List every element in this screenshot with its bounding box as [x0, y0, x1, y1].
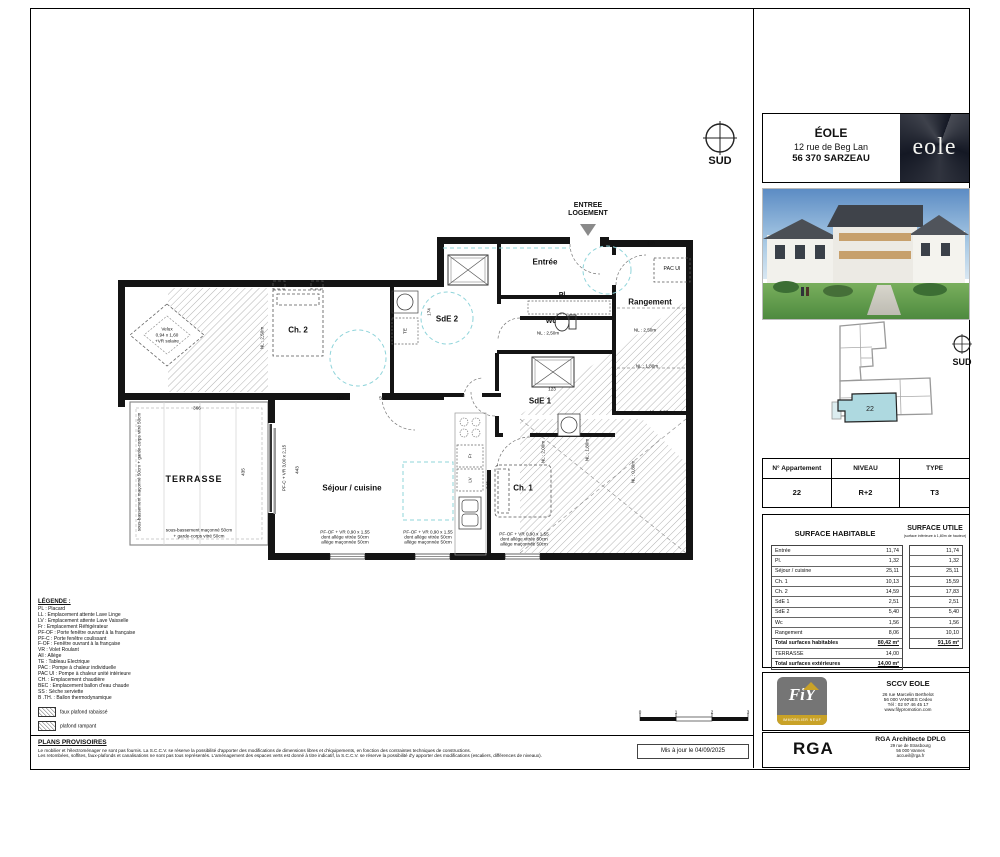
fridge-label: Fr [467, 454, 472, 458]
compass-icon [703, 121, 737, 155]
nl-wc: NL : 2,50m [537, 330, 559, 335]
updated-box: Mis à jour le 04/09/2025 [637, 744, 749, 759]
entry-arrow-label-2: LOGEMENT [568, 210, 608, 218]
room-label-placard: Pl. [559, 292, 568, 300]
updated-label: Mis à jour le 04/09/2025 [661, 748, 725, 754]
velux-line2: 0,94 x 1,60 [156, 332, 179, 337]
nl-ch1-080: NL : 0,80m [630, 461, 635, 483]
surface-utile-row: 10,10 [910, 628, 962, 638]
terrasse-side-note: sous-bassement maçonné 50cm + garde-corp… [136, 413, 141, 532]
surface-utile-row: 1,56 [910, 618, 962, 628]
room-label-sde1: SdE 1 [529, 398, 551, 407]
site-key-plan: 22 SUD [820, 318, 980, 443]
room-label-terrasse: TERRASSE [165, 475, 222, 485]
project-name: ÉOLE [763, 126, 899, 140]
room-label-ch1: Ch. 1 [513, 485, 533, 494]
project-address-1: 12 rue de Beg Lan [763, 142, 899, 152]
building-photo [762, 188, 970, 320]
surface-utile-row: 5,40 [910, 608, 962, 618]
dim-228: 228 [647, 240, 655, 245]
fily-logo-text: FiY [777, 685, 827, 705]
room-label-sde2: SdE 2 [436, 316, 458, 325]
apartment-number: 22 [763, 479, 832, 507]
velux-line1: Velux [161, 326, 172, 331]
apartment-header-num: N° Appartement [763, 459, 832, 479]
surface-total-utile: 91,16 m² [910, 639, 962, 648]
velux-line3: +VR solaire [155, 338, 179, 343]
window-label-1: PF-OF + VR 0,90 x 1,55 dont allège vitré… [310, 529, 380, 544]
room-label-sejour: Séjour / cuisine [322, 485, 381, 494]
dim-343: 343 [485, 481, 490, 489]
surface-row: SdE 12,51 [772, 597, 902, 607]
compass-label: SUD [708, 155, 731, 167]
surface-utile-row: 15,59 [910, 577, 962, 587]
promoter-name: SCCV EOLE [853, 679, 963, 688]
rga-logo: RGA [793, 739, 834, 759]
surface-utile-table: 11,74 1,32 25,11 15,59 17,83 2,51 5,40 1… [909, 545, 963, 649]
surface-row: Ch. 110,13 [772, 577, 902, 587]
scale-1: 1 [675, 709, 678, 714]
swatch-label-2: plafond rampant [60, 723, 96, 729]
eole-logo: eole [900, 114, 969, 182]
surface-total-habitable: Total surfaces habitables80,42 m² [772, 639, 902, 649]
promoter-box: FiY IMMOBILIER NEUF SCCV EOLE 26 rue Mar… [762, 672, 970, 731]
swatch-label-1: faux plafond rabaissé [60, 709, 108, 715]
apartment-header-niveau: NIVEAU [832, 459, 901, 479]
architect-box: RGA RGA Architecte DPLG 29 rue de Strasb… [762, 732, 970, 768]
architect-name: RGA Architecte DPLG [858, 736, 963, 743]
dim-123: 123 [548, 386, 556, 391]
window-label-2: PF-OF + VR 0,90 x 1,55 dont allège vitré… [393, 529, 463, 544]
dim-435: 435 [240, 468, 245, 476]
surface-utile-title: SURFACE UTILE [905, 525, 965, 532]
apartment-table: N° Appartement NIVEAU TYPE 22 R+2 T3 [762, 458, 970, 508]
surface-utile-row: 11,74 [910, 546, 962, 556]
nl-rangement-080: NL : 0,80m [650, 409, 672, 414]
nl-ch1-200: NL : 2,00m [540, 441, 545, 463]
entry-arrow-label-1: ENTREE [574, 202, 602, 210]
swatch-plafond-rampant [38, 721, 56, 731]
surface-utile-row: 2,51 [910, 597, 962, 607]
scale-2: 2 [711, 709, 714, 714]
dim-366: 366 [193, 405, 201, 410]
surface-habitable-title: SURFACE HABITABLE [769, 529, 901, 538]
surface-total-exterieur: Total surfaces extérieures14,00 m² [772, 659, 902, 668]
room-label-wc: Wc [546, 318, 557, 326]
surface-row: Entrée11,74 [772, 546, 902, 556]
surface-row: SdE 25,40 [772, 608, 902, 618]
pac-ui-label: PAC UI [664, 267, 681, 273]
surface-row: Ch. 214,59 [772, 587, 902, 597]
unit-number: 22 [866, 406, 874, 413]
surface-habitable-table: Entrée11,74 Pl.1,32 Séjour / cuisine25,1… [771, 545, 903, 670]
disclaimer-line2: Les retombées, soffites, faux-plafonds e… [38, 753, 628, 758]
pfc-door-label: PF-C + VR 3,00 x 2,15 [281, 445, 286, 491]
surface-utile-subtitle: (surface inférieure à 1,80m de hauteur) [903, 534, 967, 538]
surface-row: Wc1,56 [772, 618, 902, 628]
entrance-arrow-icon [580, 224, 596, 236]
nl-rangement-250: NL : 2,50m [634, 327, 656, 332]
terrasse-slider [270, 424, 273, 512]
dim-174: 174 [426, 308, 431, 316]
te-label: TE [402, 328, 407, 334]
window-label-3: PF-OF + VR 0,90 x 1,55 dont allège vitré… [489, 531, 559, 546]
promoter-addr4: www.filypromotion.com [853, 707, 963, 712]
surface-row: Rangement8,06 [772, 628, 902, 638]
project-address-2: 56 370 SARZEAU [763, 153, 899, 164]
legend-item: B .TH. : Ballon thermodynamique [38, 696, 258, 702]
dim-443: 443 [294, 466, 299, 474]
nl-ch2-250: NL : 2,50m [259, 327, 264, 349]
architect-addr3: accueil@rga.fr [858, 753, 963, 758]
room-label-rangement: Rangement [628, 299, 672, 308]
nl-ch1-180: NL : 1,80m [584, 439, 589, 461]
terrasse-bottom-note-2: + garde-corps vitré 50cm [174, 533, 225, 538]
title-block: ÉOLE 12 rue de Beg Lan 56 370 SARZEAU eo… [762, 113, 970, 183]
disclaimer: PLANS PROVISOIRES Le mobilier et l'élect… [38, 739, 628, 758]
scale-0: 0 [639, 709, 642, 714]
surface-row: Pl.1,32 [772, 556, 902, 566]
legend-title: LÉGENDE : [38, 599, 258, 605]
scale-3: 3 [747, 709, 750, 714]
surface-row-terrasse: TERRASSE14,00 [772, 649, 902, 659]
fily-logo: FiY IMMOBILIER NEUF [777, 677, 827, 725]
site-compass-label: SUD [952, 357, 972, 367]
room-label-entree: Entrée [533, 259, 558, 268]
swatch-faux-plafond [38, 707, 56, 717]
nl-rangement-180: NL : 1,80m [636, 363, 658, 368]
eole-logo-text: eole [900, 134, 969, 161]
panel-divider [753, 8, 754, 768]
apartment-type: T3 [900, 479, 969, 507]
apartment-niveau: R+2 [832, 479, 901, 507]
dim-160: 160 [336, 395, 344, 400]
legend: LÉGENDE : PL : Placard LL : Emplacement … [38, 599, 258, 731]
surfaces-block: SURFACE HABITABLE SURFACE UTILE (surface… [762, 514, 970, 668]
apartment-header-type: TYPE [900, 459, 969, 479]
surface-row: Séjour / cuisine25,11 [772, 567, 902, 577]
disclaimer-title: PLANS PROVISOIRES [38, 739, 628, 746]
surface-utile-row: 17,83 [910, 587, 962, 597]
surface-utile-row: 25,11 [910, 567, 962, 577]
scale-bar [640, 713, 748, 721]
fily-logo-sub: IMMOBILIER NEUF [777, 715, 827, 725]
terrasse-bottom-note-1: sous-bassement maçonné 50cm [166, 527, 232, 532]
surface-utile-row: 1,32 [910, 556, 962, 566]
dishwasher-label: LV [467, 477, 472, 482]
room-label-ch2: Ch. 2 [288, 327, 308, 336]
dim-595: 595 [379, 395, 387, 400]
